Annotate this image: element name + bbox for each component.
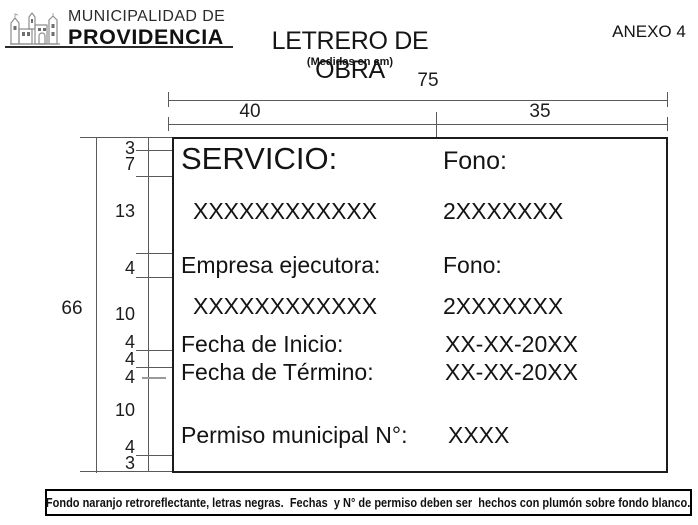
dim-tick [667, 117, 668, 131]
sign-fecha-termino-placeholder: XX-XX-20XX [445, 360, 578, 385]
dim-line-split-width [168, 124, 668, 125]
seg-tick [136, 176, 172, 177]
sign-permiso-placeholder: XXXX [448, 423, 509, 448]
page-subtitle-units: (Medidas en cm) [250, 56, 450, 68]
logo-underline [5, 46, 233, 48]
municipality-buildings-logo-icon [8, 8, 64, 48]
sign-fecha-inicio-label: Fecha de Inicio: [181, 332, 343, 357]
sign-servicio-label: SERVICIO: [181, 142, 337, 176]
seg-tick [136, 253, 172, 254]
footnote-box: Fondo naranjo retroreflectante, letras n… [45, 489, 692, 516]
sign-fecha-inicio-placeholder: XX-XX-20XX [445, 332, 578, 357]
dim-tick [168, 92, 169, 107]
sign-empresa-fono-label: Fono: [443, 253, 502, 278]
org-name-block: MUNICIPALIDAD DE PROVIDENCIA [68, 8, 225, 48]
seg-label-1: 7 [103, 154, 135, 174]
seg-tick [136, 150, 172, 151]
seg-label-2: 13 [103, 201, 135, 221]
sign-empresa-value-placeholder: XXXXXXXXXXXX [193, 294, 377, 319]
dim-label-width-left: 40 [220, 102, 280, 122]
sign-servicio-fono-label: Fono: [443, 148, 507, 176]
seg-tick [136, 277, 172, 278]
org-name-line1: MUNICIPALIDAD DE [68, 8, 225, 26]
dim-label-total-width: 75 [398, 71, 458, 91]
dim-label-width-right: 35 [510, 102, 570, 122]
sign-fecha-termino-label: Fecha de Término: [181, 360, 374, 385]
seg-tick [136, 367, 172, 368]
seg-label-6: 4 [103, 349, 135, 369]
dim-tick [667, 92, 668, 107]
sign-servicio-value-placeholder: XXXXXXXXXXXX [193, 199, 377, 224]
seg-label-4: 10 [103, 304, 135, 324]
sign-permiso-label: Permiso municipal N°: [181, 423, 408, 448]
sign-empresa-fono-placeholder: 2XXXXXXX [443, 294, 563, 319]
dim-label-total-height: 66 [52, 299, 92, 319]
seg-label-10: 3 [103, 453, 135, 473]
seg-label-7: 4 [103, 367, 135, 387]
seg-tick-stub [142, 377, 166, 379]
seg-label-3: 4 [103, 258, 135, 278]
dim-line-segments [148, 137, 149, 472]
org-name-line2: PROVIDENCIA [68, 26, 225, 48]
sign-servicio-fono-placeholder: 2XXXXXXX [443, 199, 563, 224]
annex-label: ANEXO 4 [610, 22, 688, 42]
seg-tick [136, 455, 172, 456]
dim-tick [168, 117, 169, 131]
dim-tick-middle [436, 112, 437, 138]
sign-empresa-label: Empresa ejecutora: [181, 253, 380, 278]
anexo4-letrero-de-obra-page: MUNICIPALIDAD DE PROVIDENCIA LETRERO DE … [0, 0, 698, 525]
footnote-text: Fondo naranjo retroreflectante, letras n… [46, 496, 690, 510]
seg-label-8: 10 [103, 400, 135, 420]
dim-line-total-height [96, 137, 97, 473]
seg-tick [136, 350, 172, 351]
